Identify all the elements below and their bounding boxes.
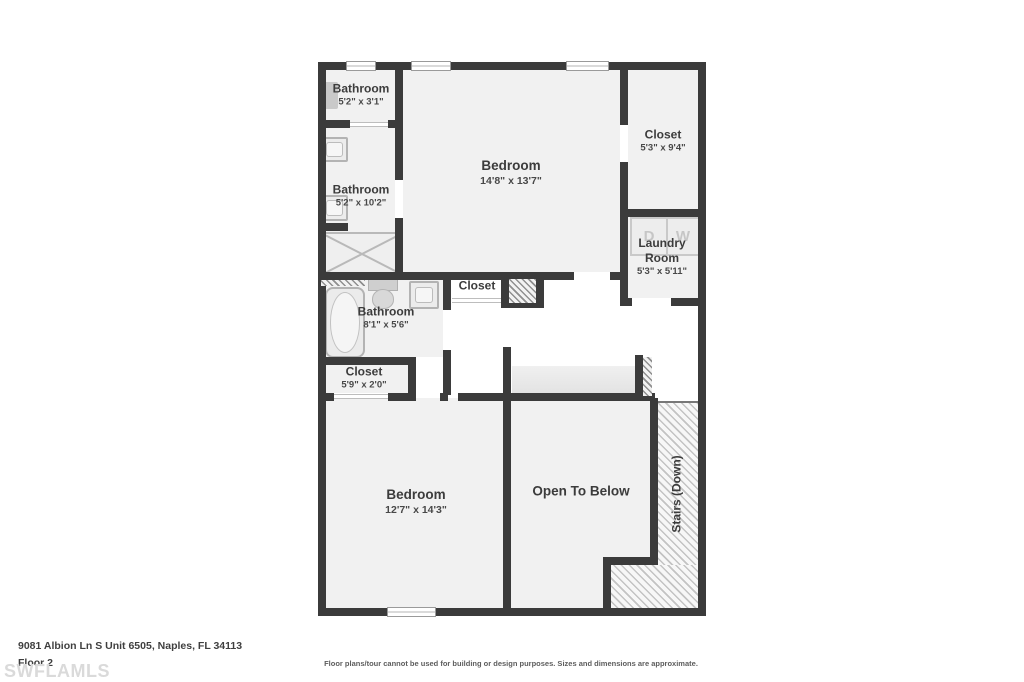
wall — [610, 272, 628, 280]
floor-plan-page: D W Bathroom 5'2" x 3'1" Bathroom 5'2" x — [0, 0, 1024, 682]
window — [411, 61, 451, 71]
room-dims: 5'3" x 9'4" — [640, 143, 685, 155]
wall — [671, 298, 706, 306]
room-label-bedroom-top: Bedroom 14'8" x 13'7" — [480, 158, 542, 188]
railing-half-wall — [512, 366, 635, 395]
wall — [318, 393, 334, 401]
room-label-closet-bottom: Closet 5'9" x 2'0" — [341, 365, 386, 392]
watermark-text: SWFLAMLS — [4, 661, 110, 682]
room-name: Laundry Room — [629, 236, 695, 266]
closet-opening — [452, 298, 501, 303]
wall — [650, 398, 658, 565]
room-name: Open To Below — [532, 484, 629, 501]
room-dims: 14'8" x 13'7" — [480, 175, 542, 188]
room-label-bathroom-middle: Bathroom 8'1" x 5'6" — [358, 305, 415, 332]
shower-x-icon — [323, 234, 401, 274]
wall — [603, 563, 611, 610]
room-name: Stairs (Down) — [670, 455, 685, 532]
room-name: Bedroom — [480, 158, 542, 175]
room-dims: 5'9" x 2'0" — [341, 380, 386, 392]
wall — [443, 277, 451, 310]
room-label-bathroom-left: Bathroom 5'2" x 10'2" — [333, 183, 390, 210]
room-dims: 12'7" x 14'3" — [385, 504, 447, 517]
room-dims: 5'2" x 10'2" — [333, 198, 390, 210]
room-name: Bedroom — [385, 487, 447, 504]
wall — [318, 120, 350, 128]
wall — [635, 355, 643, 396]
room-label-bedroom-bottom: Bedroom 12'7" x 14'3" — [385, 487, 447, 517]
room-name: Bathroom — [358, 305, 415, 320]
stair-top-hatch — [643, 357, 652, 396]
wall — [698, 62, 706, 616]
address-text: 9081 Albion Ln S Unit 6505, Naples, FL 3… — [18, 640, 242, 652]
wall — [318, 62, 326, 616]
wall — [443, 350, 451, 395]
closet-opening — [334, 394, 388, 399]
disclaimer-text: Floor plans/tour cannot be used for buil… — [324, 659, 698, 668]
wall — [620, 162, 628, 306]
room-name: Closet — [640, 128, 685, 143]
wall — [388, 120, 403, 128]
window — [566, 61, 609, 71]
window — [346, 61, 376, 71]
chase-hatch — [509, 279, 536, 303]
room-name: Closet — [459, 279, 496, 294]
room-dims: 5'3" x 5'11" — [629, 266, 695, 278]
wall — [388, 393, 415, 401]
room-name: Closet — [341, 365, 386, 380]
room-label-laundry: Laundry Room 5'3" x 5'11" — [629, 236, 695, 278]
wall — [440, 393, 448, 401]
room-dims: 8'1" x 5'6" — [358, 320, 415, 332]
shower-stall — [321, 232, 403, 276]
room-label-bathroom-top: Bathroom 5'2" x 3'1" — [333, 82, 390, 109]
room-label-closet-right: Closet 5'3" x 9'4" — [640, 128, 685, 155]
room-label-open-to-below: Open To Below — [532, 484, 629, 501]
wall — [603, 557, 658, 565]
shower-glass-hatch — [321, 280, 365, 286]
room-name: Bathroom — [333, 82, 390, 97]
wall — [628, 209, 706, 217]
wall — [458, 393, 655, 401]
wall — [503, 347, 511, 608]
wall — [318, 223, 348, 231]
wall — [620, 298, 632, 306]
wall — [395, 218, 403, 278]
window — [387, 607, 436, 617]
wall — [620, 70, 628, 125]
wall — [318, 608, 706, 616]
room-name: Bathroom — [333, 183, 390, 198]
stairs-lower-hatch — [611, 565, 698, 608]
door-opening — [350, 122, 388, 127]
room-dims: 5'2" x 3'1" — [333, 97, 390, 109]
room-label-closet-middle: Closet — [459, 279, 496, 294]
room-label-stairs: Stairs (Down) — [670, 455, 685, 532]
wall — [318, 62, 706, 70]
